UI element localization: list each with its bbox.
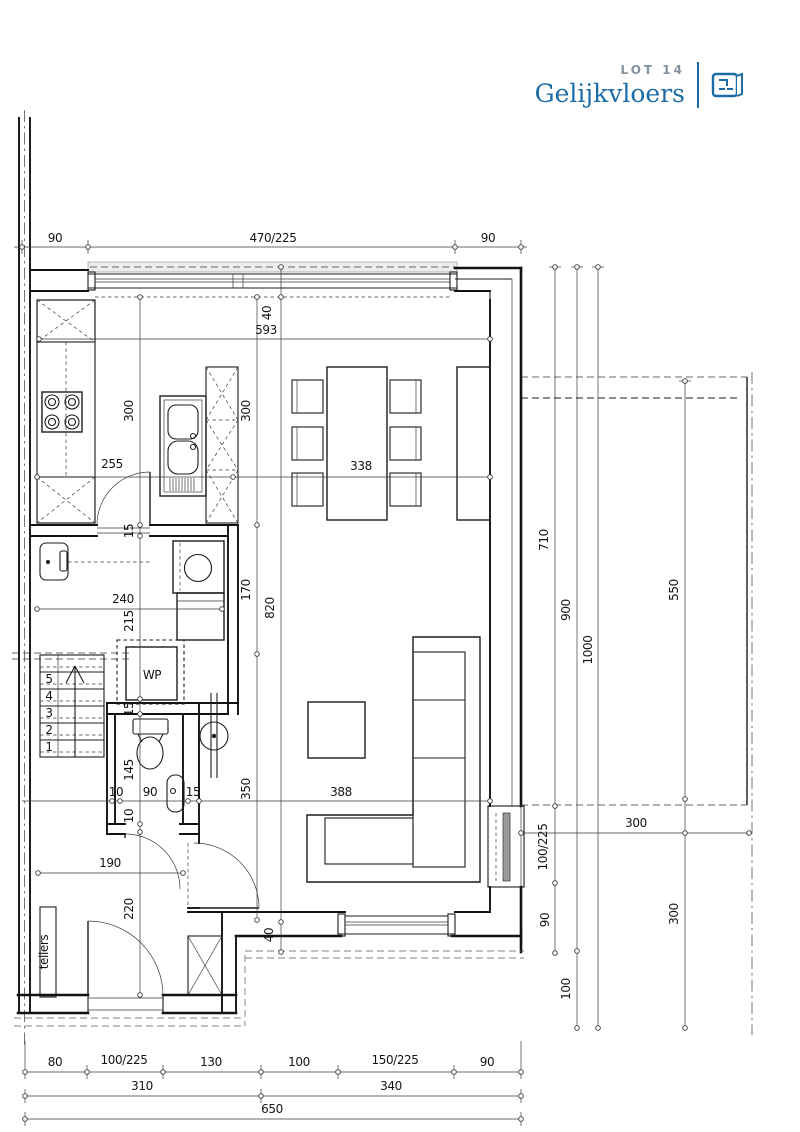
dimension-label: 90 <box>48 231 62 245</box>
radiator <box>200 693 228 778</box>
dimension-label: 10 <box>109 785 123 799</box>
kitchen-counter <box>37 300 95 523</box>
dimension-label: 300 <box>122 400 136 422</box>
stair-number: 4 <box>45 689 52 703</box>
floor-plan-svg: 90470/2259040593300300255338151708202402… <box>0 0 800 1132</box>
dimension-label: 470/225 <box>249 231 296 245</box>
dimension-label: 340 <box>380 1079 402 1093</box>
stair-number: 1 <box>45 740 52 754</box>
dimension-label: 15 <box>122 702 136 716</box>
dimension-label: 300 <box>625 816 647 830</box>
interior-walls <box>31 472 259 908</box>
stair-number: 2 <box>45 723 52 737</box>
north-window <box>88 272 457 290</box>
party-wall <box>19 110 30 1046</box>
dimension-label: 650 <box>261 1102 283 1116</box>
laundry-sink <box>40 543 68 580</box>
wc-basin <box>167 775 184 812</box>
dimension-label: 100 <box>288 1055 310 1069</box>
dimension-label: 90 <box>480 1055 494 1069</box>
stove <box>42 392 82 432</box>
dimension-label: 550 <box>667 579 681 601</box>
stair-arrow <box>66 666 84 757</box>
dimension-label: 90 <box>538 913 552 927</box>
dimension-label: 40 <box>260 306 274 320</box>
east-window <box>488 806 524 887</box>
front-door <box>88 921 163 1013</box>
east-wall <box>488 268 524 952</box>
dimension-label: 130 <box>200 1055 222 1069</box>
dimension-label: 900 <box>559 599 573 621</box>
stair-number: 3 <box>45 706 52 720</box>
sofa <box>307 637 480 882</box>
wc-toilet <box>133 719 168 769</box>
dimension-label: 145 <box>122 759 136 781</box>
dimension-label: 10 <box>122 809 136 823</box>
coffee-table <box>308 702 365 758</box>
dimension-label: 255 <box>101 457 123 471</box>
dimension-label: 100/225 <box>536 823 550 870</box>
dimension-label: 90 <box>481 231 495 245</box>
dimension-label: 820 <box>263 597 277 619</box>
dimension-label: 150/225 <box>371 1053 418 1067</box>
dining-table <box>327 367 387 520</box>
dimension-label: 1000 <box>581 636 595 665</box>
room-label-wp: WP <box>143 668 161 682</box>
dimension-label: 40 <box>262 928 276 942</box>
dimension-label: 350 <box>239 778 253 800</box>
living-door <box>188 843 259 908</box>
dimension-label: 593 <box>255 323 277 337</box>
dimension-label: 388 <box>330 785 352 799</box>
dimension-label: 100/225 <box>100 1053 147 1067</box>
dimension-label: 300 <box>239 400 253 422</box>
sink-unit <box>160 396 206 496</box>
dimension-label: 240 <box>112 592 134 606</box>
dimension-label: 338 <box>350 459 372 473</box>
dimension-label: 310 <box>131 1079 153 1093</box>
dimension-lines <box>14 240 751 1126</box>
roof-outline <box>14 951 524 1026</box>
dimension-ticks <box>20 245 752 1122</box>
dining-chairs <box>292 380 421 506</box>
wc-door <box>125 834 180 889</box>
dimension-label: 300 <box>667 903 681 925</box>
dimension-label: 220 <box>122 898 136 920</box>
sideboard <box>457 367 490 520</box>
north-wall <box>31 262 521 300</box>
dimension-label: 15 <box>186 785 200 799</box>
dimension-label: 100 <box>559 978 573 1000</box>
washing-machine <box>173 541 224 593</box>
dimension-label: 90 <box>143 785 157 799</box>
dimension-label: 15 <box>122 524 136 538</box>
dimension-label: 710 <box>537 529 551 551</box>
room-label-tellers: tellers <box>37 935 51 970</box>
south-window <box>338 914 455 936</box>
stair-number: 5 <box>45 672 52 686</box>
dryer-unit <box>177 593 224 640</box>
dimension-label: 215 <box>122 610 136 632</box>
dimension-label: 80 <box>48 1055 62 1069</box>
tall-cabinets <box>206 367 238 523</box>
dimension-label: 190 <box>99 856 121 870</box>
drainer <box>170 478 194 491</box>
dimension-labels: 90470/2259040593300300255338151708202402… <box>37 231 681 1116</box>
floor-plan-page: LOT 14 Gelijkvloers <box>0 0 800 1132</box>
dimension-label: 170 <box>239 579 253 601</box>
